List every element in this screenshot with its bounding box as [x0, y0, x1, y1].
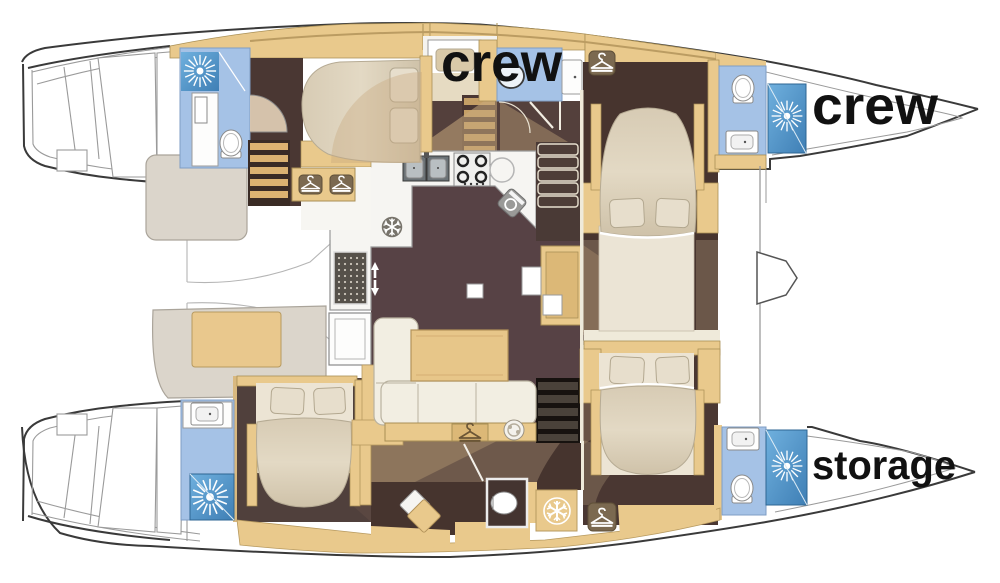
svg-text:crew: crew — [812, 76, 939, 136]
svg-text:storage: storage — [812, 442, 956, 488]
svg-text:crew: crew — [441, 33, 563, 93]
